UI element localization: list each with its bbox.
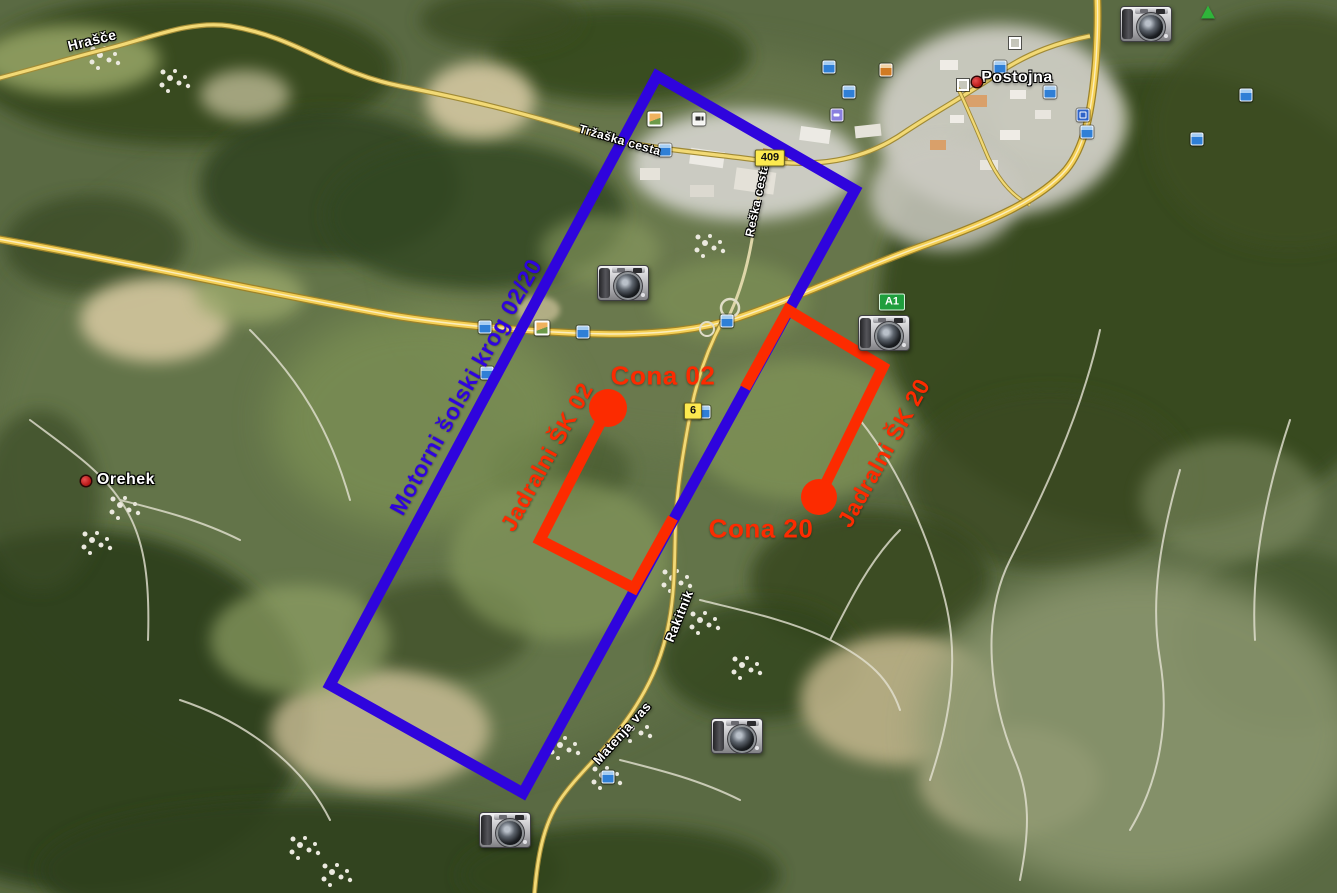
town-marker-dot — [81, 476, 91, 486]
camera-lens — [498, 821, 522, 845]
route-shield-a1: A1 — [879, 294, 905, 311]
route-shield-6: 6 — [684, 403, 702, 420]
camera-lens — [1139, 15, 1163, 39]
camera-shutter — [499, 815, 507, 819]
place-label-orehek: Orehek — [97, 471, 155, 489]
camera-viewfinder — [1156, 9, 1165, 14]
route-shield-409: 409 — [755, 150, 785, 167]
camera-viewfinder — [747, 721, 756, 726]
camera-flash-dot — [641, 293, 645, 297]
camera-flash-dot — [1164, 34, 1168, 38]
camera-grip — [860, 318, 871, 348]
camera-grip — [713, 721, 724, 751]
camera-lens — [616, 274, 640, 298]
zone-label-cona-02: Cona 02 — [611, 361, 716, 392]
camera-shutter — [617, 268, 625, 272]
camera-flash-dot — [755, 746, 759, 750]
camera-grip — [481, 815, 492, 845]
camera-flash-dot — [523, 840, 527, 844]
camera-lens — [877, 324, 901, 348]
camera-flash-dot — [902, 343, 906, 347]
satellite-map[interactable]: Motorni šolski krog 02/20Jadralni ŠK 02C… — [0, 0, 1337, 893]
photo-camera-icon[interactable] — [479, 812, 531, 848]
camera-shutter — [731, 721, 739, 725]
photo-camera-icon[interactable] — [1120, 6, 1172, 42]
camera-grip — [1122, 9, 1133, 39]
camera-lens — [730, 727, 754, 751]
place-label-postojna: Postojna — [981, 69, 1053, 87]
camera-grip — [599, 268, 610, 298]
camera-shutter — [1140, 9, 1148, 13]
photo-camera-icon[interactable] — [597, 265, 649, 301]
zone-label-cona-20: Cona 20 — [709, 514, 814, 545]
photo-camera-icon[interactable] — [711, 718, 763, 754]
camera-viewfinder — [515, 815, 524, 820]
camera-viewfinder — [633, 268, 642, 273]
photo-camera-icon[interactable] — [858, 315, 910, 351]
cona-20-dot — [801, 479, 837, 515]
flight-circuit-overlay — [0, 0, 1337, 893]
camera-viewfinder — [894, 318, 903, 323]
town-marker-dot — [972, 77, 982, 87]
camera-shutter — [878, 318, 886, 322]
